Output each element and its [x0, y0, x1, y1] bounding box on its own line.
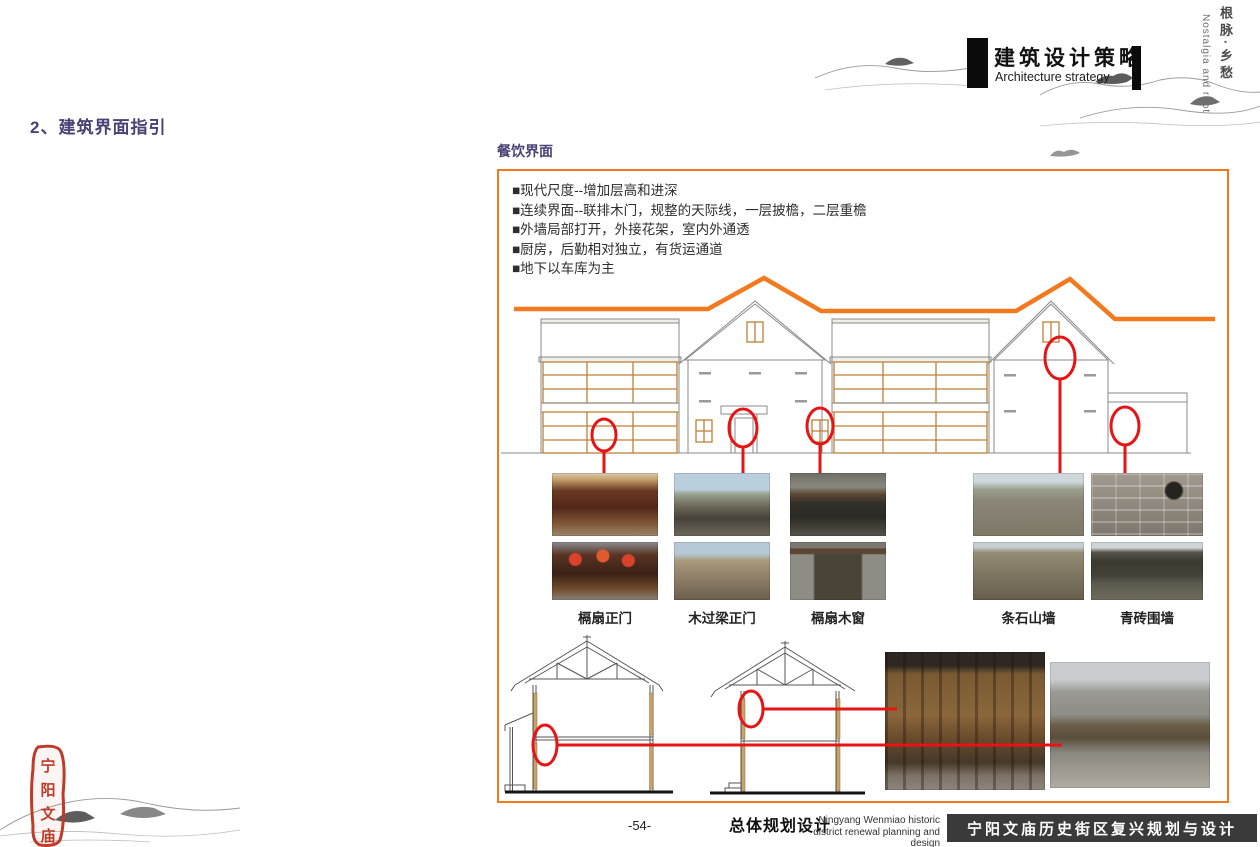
side-vertical-text-en: Nostalgia and root: [1200, 14, 1211, 113]
footer-subtitle-line2: district renewal planning and design: [806, 827, 940, 847]
photo-brick-wall-1: [1091, 473, 1203, 536]
document-page: 建筑设计策略 Architecture strategy 根脉·乡愁 Nosta…: [0, 0, 1260, 847]
photo-wood-lintel-gate-1: [674, 473, 770, 536]
ink-squiggle-art: [1048, 146, 1088, 160]
footer-subtitle-line1: Ningyang Wenmiao historic: [806, 815, 940, 827]
photo-brick-wall-2: [1091, 542, 1203, 600]
ink-mountain-art: [815, 48, 985, 100]
svg-text:庙: 庙: [40, 827, 55, 845]
photo-caption: 条石山墙: [973, 607, 1084, 625]
photo-geshan-window-2: [790, 542, 886, 600]
photo-caption: 槅扇木窗: [790, 607, 886, 625]
photo-geshan-gate-2: [552, 542, 658, 600]
page-header-title: 建筑设计策略: [994, 42, 1144, 72]
svg-text:阳: 阳: [40, 782, 55, 799]
side-vertical-text-cn: 根脉·乡愁: [1216, 6, 1235, 82]
photo-geshan-gate-1: [552, 473, 658, 536]
bullet-item: ■厨房，后勤相对独立，有货运通道: [512, 240, 1217, 260]
photo-geshan-window-1: [790, 473, 886, 536]
page-number: -54-: [628, 818, 651, 833]
bullet-list: ■现代尺度--增加层高和进深 ■连续界面--联排木门，规整的天际线，一层披檐，二…: [512, 181, 1217, 279]
page-header-subtitle: Architecture strategy: [995, 70, 1110, 84]
photo-caption: 青砖围墙: [1091, 607, 1203, 625]
footer-project-banner: 宁阳文庙历史街区复兴规划与设计: [947, 814, 1257, 842]
panel-label: 餐饮界面: [497, 141, 553, 161]
seal-stamp: 宁 阳 文 庙: [28, 744, 68, 847]
header-accent-bar: [967, 38, 988, 88]
svg-text:宁: 宁: [40, 757, 55, 775]
photo-caption: 槅扇正门: [552, 607, 658, 625]
photo-caption: 木过梁正门: [674, 607, 770, 625]
bullet-item: ■现代尺度--增加层高和进深: [512, 181, 1217, 201]
photo-stone-gable-1: [973, 473, 1084, 536]
section-heading: 2、建筑界面指引: [30, 113, 166, 138]
photo-stone-gable-2: [973, 542, 1084, 600]
bullet-item: ■地下以车库为主: [512, 259, 1217, 279]
header-accent-bar-thin: [1132, 46, 1141, 90]
svg-text:文: 文: [40, 805, 56, 823]
photo-brick-courtyard: [1050, 662, 1210, 788]
bullet-item: ■外墙局部打开，外接花架，室内外通透: [512, 220, 1217, 240]
bullet-item: ■连续界面--联排木门，规整的天际线，一层披檐，二层重檐: [512, 201, 1217, 221]
photo-wood-teahouse: [885, 652, 1045, 790]
ink-mountain-art: [0, 758, 240, 847]
footer-subtitle-en: Ningyang Wenmiao historic district renew…: [806, 815, 940, 847]
photo-wood-lintel-gate-2: [674, 542, 770, 600]
